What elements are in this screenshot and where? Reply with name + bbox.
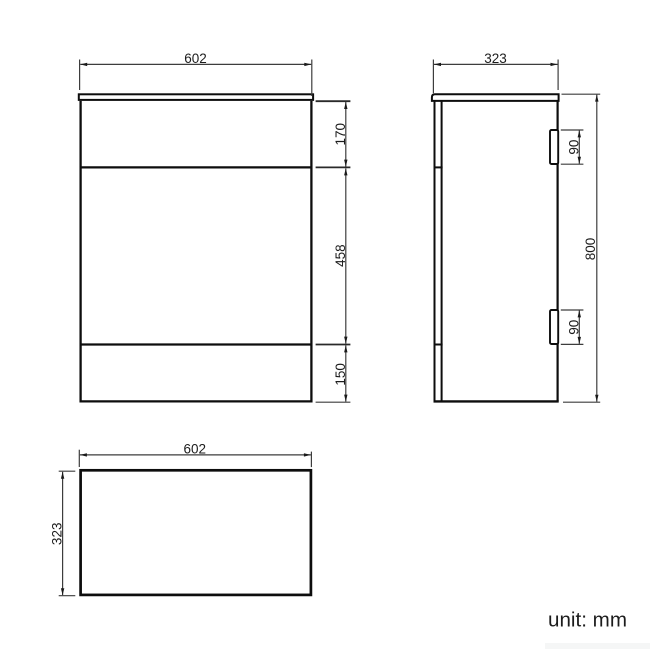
svg-text:602: 602 [184, 51, 207, 66]
svg-text:323: 323 [484, 51, 507, 66]
svg-text:unit: mm: unit: mm [548, 608, 627, 631]
svg-text:458: 458 [333, 244, 348, 267]
svg-text:90: 90 [566, 320, 581, 335]
svg-text:800: 800 [583, 238, 598, 261]
svg-text:602: 602 [184, 441, 207, 456]
svg-text:323: 323 [50, 523, 65, 546]
svg-text:170: 170 [333, 123, 348, 146]
svg-text:150: 150 [333, 363, 348, 386]
svg-text:90: 90 [566, 140, 581, 155]
